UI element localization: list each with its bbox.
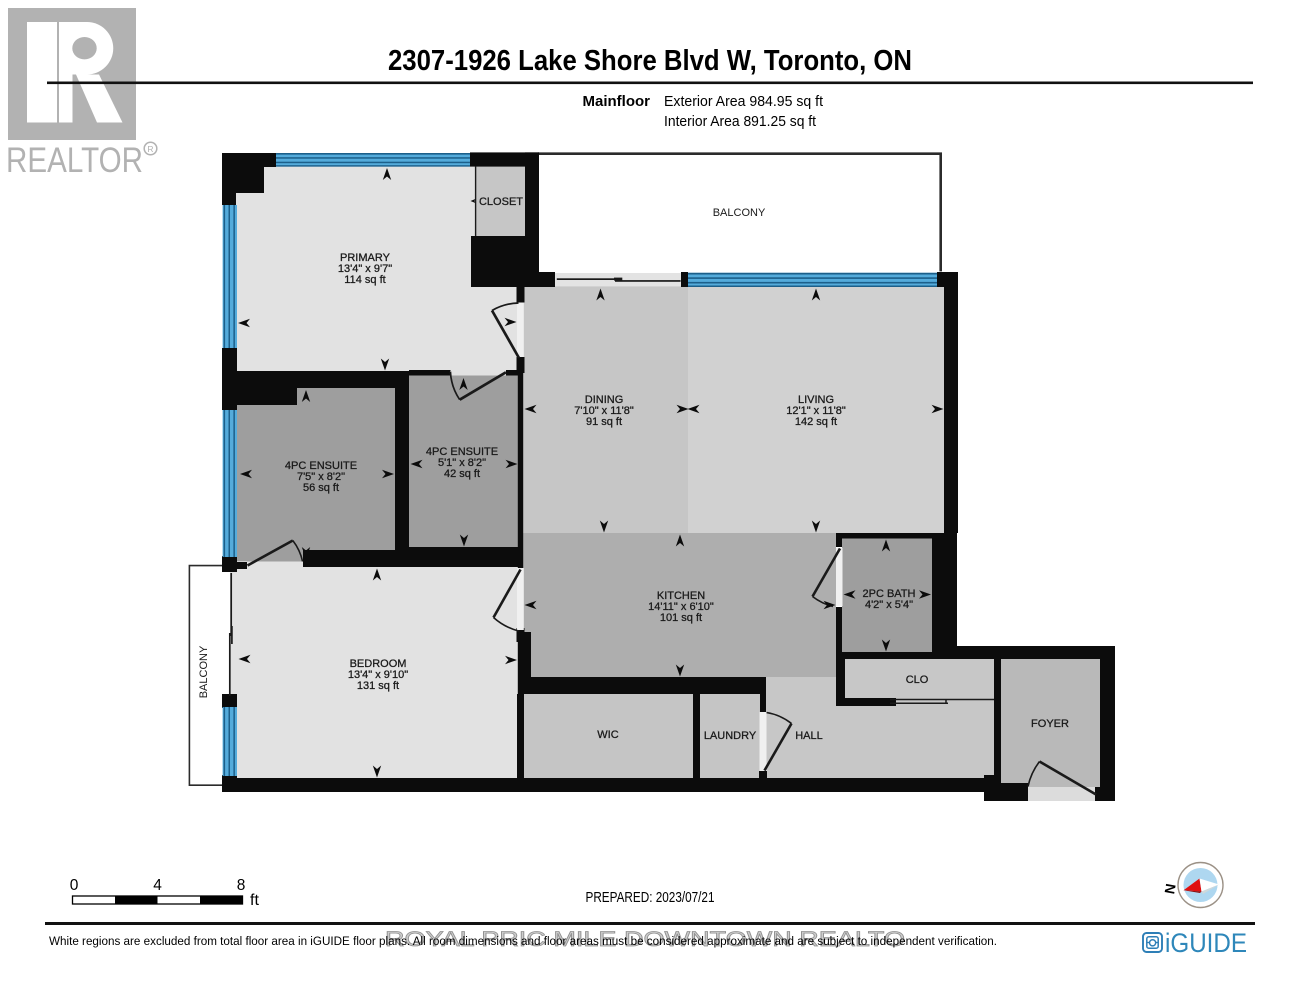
svg-text:56 sq ft: 56 sq ft: [303, 482, 339, 494]
svg-text:BALCONY: BALCONY: [198, 645, 210, 698]
svg-text:BALCONY: BALCONY: [713, 207, 766, 219]
svg-text:4: 4: [153, 877, 162, 894]
svg-text:Interior Area 891.25 sq ft: Interior Area 891.25 sq ft: [664, 114, 816, 130]
svg-text:HALL: HALL: [795, 730, 823, 742]
svg-text:White regions are excluded fro: White regions are excluded from total fl…: [49, 934, 997, 948]
svg-text:91 sq ft: 91 sq ft: [586, 416, 622, 428]
svg-text:PREPARED: 2023/07/21: PREPARED: 2023/07/21: [586, 890, 715, 906]
svg-text:101 sq ft: 101 sq ft: [660, 612, 702, 624]
svg-text:ft: ft: [250, 892, 259, 909]
svg-text:CLO: CLO: [906, 674, 929, 686]
svg-text:iGUIDE: iGUIDE: [1165, 928, 1247, 958]
svg-text:2307-1926 Lake Shore Blvd W, T: 2307-1926 Lake Shore Blvd W, Toronto, ON: [388, 45, 912, 77]
svg-text:0: 0: [70, 877, 79, 894]
svg-text:CLOSET: CLOSET: [479, 196, 523, 208]
svg-text:Exterior Area 984.95 sq ft: Exterior Area 984.95 sq ft: [664, 94, 823, 110]
svg-text:42 sq ft: 42 sq ft: [444, 468, 480, 480]
svg-text:WIC: WIC: [597, 729, 618, 741]
svg-text:FOYER: FOYER: [1031, 718, 1069, 730]
svg-text:8: 8: [237, 877, 246, 894]
svg-text:131 sq ft: 131 sq ft: [357, 680, 399, 692]
svg-text:4'2" x 5'4": 4'2" x 5'4": [865, 599, 913, 611]
svg-text:REALTOR: REALTOR: [6, 141, 143, 180]
svg-text:R: R: [147, 144, 153, 154]
svg-text:LAUNDRY: LAUNDRY: [704, 730, 757, 742]
svg-text:114 sq ft: 114 sq ft: [344, 274, 385, 286]
svg-text:142 sq ft: 142 sq ft: [795, 416, 837, 428]
svg-text:Mainfloor: Mainfloor: [583, 93, 651, 110]
